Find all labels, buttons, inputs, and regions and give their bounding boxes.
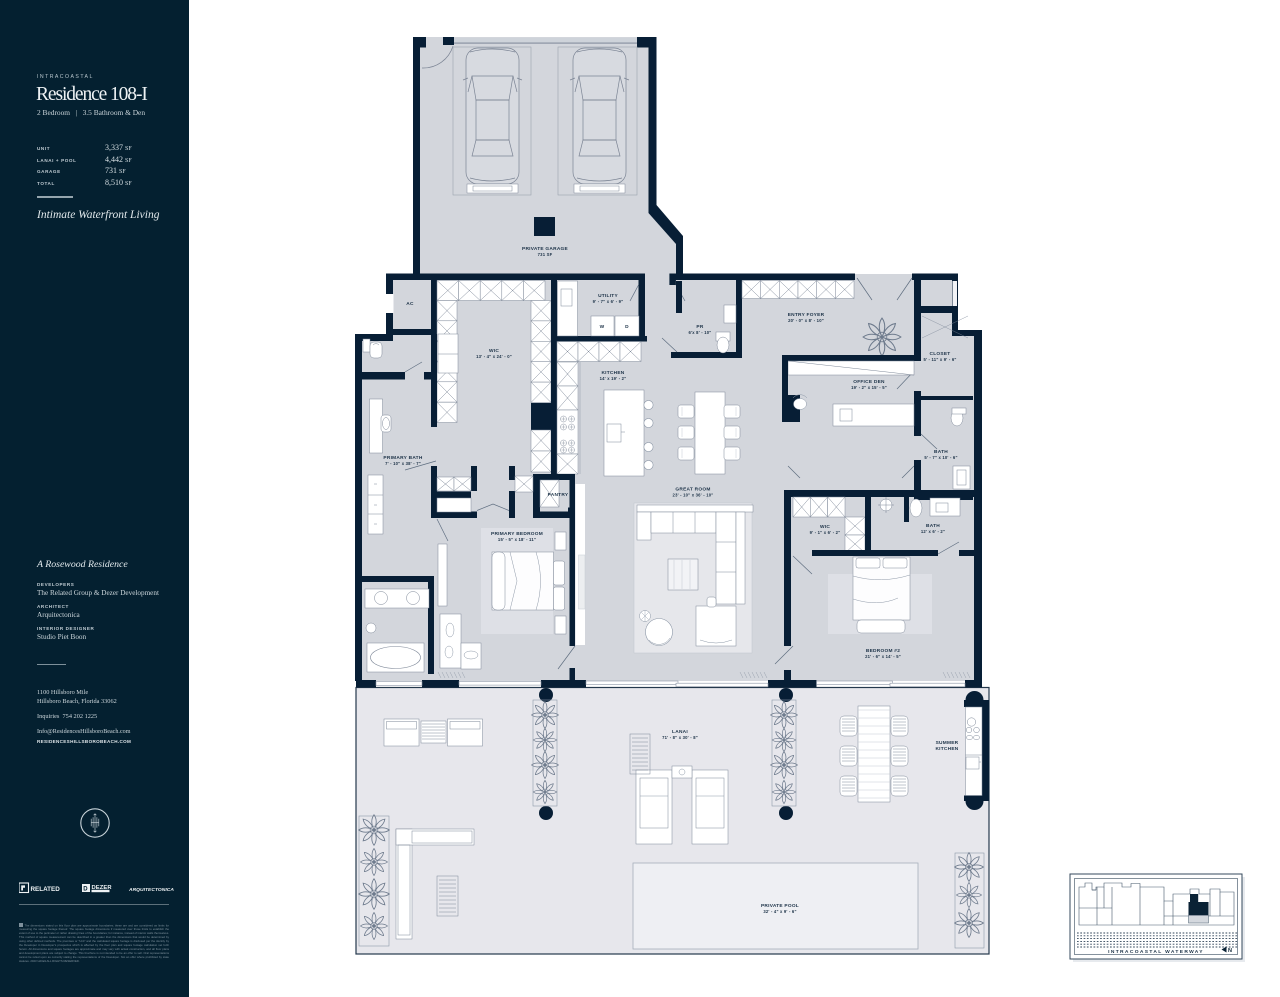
svg-text:32' - 4" x 9' - 6": 32' - 4" x 9' - 6": [763, 909, 796, 914]
svg-text:731 SF: 731 SF: [538, 252, 553, 257]
svg-text:21' - 6" x 14' - 5": 21' - 6" x 14' - 5": [865, 654, 901, 659]
svg-text:13' - 4" x 24' - 0": 13' - 4" x 24' - 0": [476, 354, 512, 359]
svg-text:9' - 7" x 6' - 9": 9' - 7" x 6' - 9": [593, 299, 624, 304]
svg-text:19' - 2" x 15' - 5": 19' - 2" x 15' - 5": [851, 385, 887, 390]
svg-text:KITCHEN: KITCHEN: [935, 746, 958, 752]
svg-text:20' - 0" x 8' - 10": 20' - 0" x 8' - 10": [788, 318, 824, 323]
svg-text:7' - 10" x 38' - 7": 7' - 10" x 38' - 7": [385, 461, 421, 466]
svg-text:15' - 5" x 18' - 11": 15' - 5" x 18' - 11": [498, 537, 536, 542]
svg-text:23' - 10" x 36' - 10": 23' - 10" x 36' - 10": [673, 493, 714, 498]
svg-text:12' x 6' - 2": 12' x 6' - 2": [921, 529, 945, 534]
svg-text:PANTRY: PANTRY: [548, 492, 569, 498]
svg-text:14' x 19' - 2": 14' x 19' - 2": [600, 376, 627, 381]
svg-text:AC: AC: [406, 301, 414, 307]
svg-text:71' - 8" x 30' - 8": 71' - 8" x 30' - 8": [662, 735, 698, 740]
svg-text:N: N: [1228, 948, 1232, 954]
svg-text:5' - 11" x 9' - 6": 5' - 11" x 9' - 6": [923, 357, 956, 362]
svg-text:INTRACOASTAL WATERWAY: INTRACOASTAL WATERWAY: [1108, 949, 1204, 955]
svg-text:SUMMER: SUMMER: [936, 740, 959, 746]
svg-text:6'x 8' - 10": 6'x 8' - 10": [689, 330, 712, 335]
svg-text:D: D: [625, 324, 629, 330]
svg-text:9' - 1" x 6' - 2": 9' - 1" x 6' - 2": [810, 530, 841, 535]
svg-text:5' - 7" x 10' - 6": 5' - 7" x 10' - 6": [924, 455, 957, 460]
svg-text:W: W: [600, 324, 605, 330]
